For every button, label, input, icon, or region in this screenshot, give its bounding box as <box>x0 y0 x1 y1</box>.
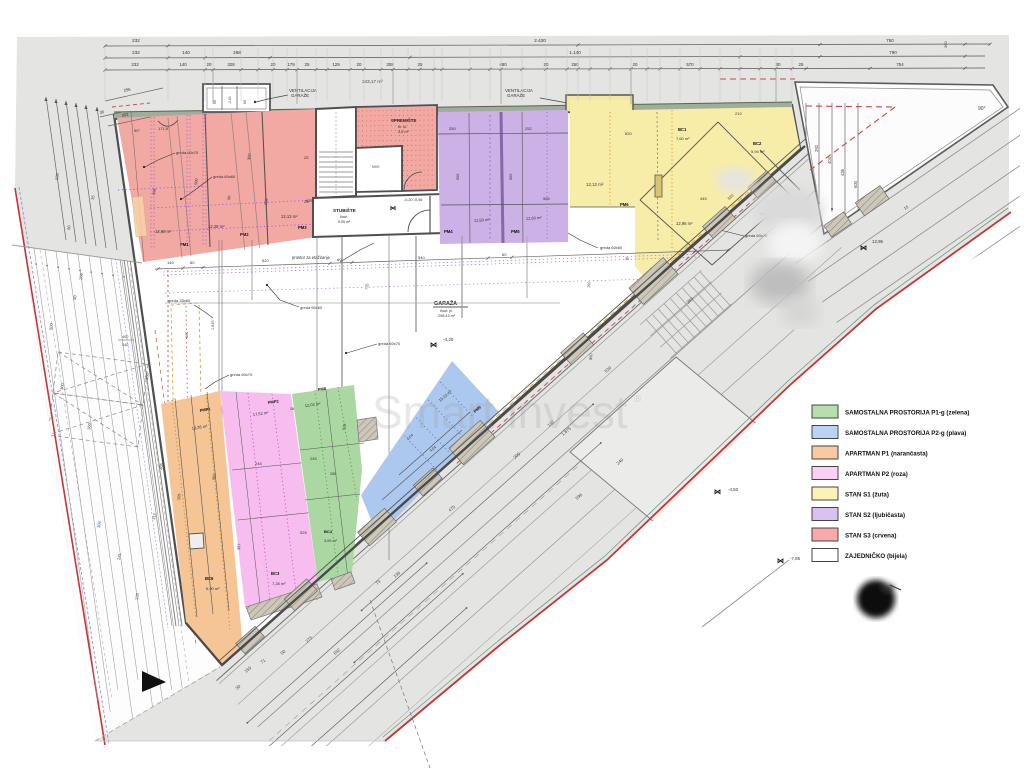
svg-text:SAMOSTALNA PROSTORIJA P2-g (p: SAMOSTALNA PROSTORIJA P2-g (plava) <box>845 430 966 437</box>
svg-text:60: 60 <box>213 100 217 104</box>
svg-text:30: 30 <box>625 257 629 261</box>
svg-text:25: 25 <box>305 62 310 67</box>
svg-text:1.645: 1.645 <box>211 320 215 330</box>
svg-text:STUBIŠTE: STUBIŠTE <box>333 206 356 213</box>
svg-text:greda 35x60: greda 35x60 <box>168 298 191 303</box>
svg-text:12,28 m²: 12,28 m² <box>208 224 225 229</box>
svg-text:12,12 m²: 12,12 m² <box>586 182 604 187</box>
svg-text:404: 404 <box>827 156 832 164</box>
svg-text:950: 950 <box>589 354 593 361</box>
svg-text:BC2: BC2 <box>753 141 762 146</box>
svg-text:PM4: PM4 <box>444 229 453 234</box>
svg-text:565: 565 <box>543 196 550 201</box>
svg-text:20: 20 <box>544 62 549 67</box>
svg-text:greda 60x60: greda 60x60 <box>213 174 236 179</box>
svg-text:12,96 m²: 12,96 m² <box>676 221 693 226</box>
svg-text:754: 754 <box>896 62 904 67</box>
svg-text:ZAJEDNIČKO (bijela): ZAJEDNIČKO (bijela) <box>845 553 907 560</box>
svg-text:greda 60x70: greda 60x70 <box>230 372 253 377</box>
svg-text:750: 750 <box>886 38 894 43</box>
svg-text:445: 445 <box>700 196 707 201</box>
svg-text:5,94 m²: 5,94 m² <box>751 149 765 154</box>
svg-text:250: 250 <box>449 126 456 131</box>
svg-text:20: 20 <box>207 62 212 67</box>
svg-text:620: 620 <box>625 131 632 136</box>
svg-text:tlocrt. pl.: tlocrt. pl. <box>440 309 453 313</box>
svg-text:⋈: ⋈ <box>714 489 721 496</box>
svg-text:398: 398 <box>152 188 157 195</box>
svg-text:232: 232 <box>132 50 140 55</box>
svg-text:90°: 90° <box>134 128 140 133</box>
svg-text:550: 550 <box>264 198 269 205</box>
svg-text:140: 140 <box>182 50 190 55</box>
svg-text:prostor za etažiranje: prostor za etažiranje <box>292 255 331 260</box>
svg-text:129: 129 <box>332 62 340 67</box>
svg-text:600: 600 <box>853 180 858 188</box>
svg-text:600: 600 <box>185 332 189 338</box>
svg-text:179: 179 <box>287 62 295 67</box>
svg-text:480: 480 <box>499 62 507 67</box>
svg-text:500: 500 <box>456 174 460 180</box>
svg-text:298,43 m²: 298,43 m² <box>438 314 456 318</box>
svg-text:60: 60 <box>502 252 507 257</box>
svg-text:328: 328 <box>227 62 235 67</box>
svg-text:245: 245 <box>255 461 262 466</box>
svg-text:9,05 m²: 9,05 m² <box>338 220 351 224</box>
svg-text:-0,20 -0,46: -0,20 -0,46 <box>404 198 422 202</box>
svg-text:PM3: PM3 <box>298 225 307 230</box>
svg-text:12,13 m²: 12,13 m² <box>281 214 298 219</box>
svg-text:252: 252 <box>525 126 532 131</box>
svg-text:STAN S2 (ljubičasta): STAN S2 (ljubičasta) <box>845 512 905 519</box>
svg-text:60: 60 <box>337 257 342 262</box>
svg-text:20: 20 <box>633 62 638 67</box>
svg-text:PM2: PM2 <box>240 232 249 237</box>
svg-text:90°: 90° <box>978 106 986 112</box>
svg-text:150: 150 <box>587 282 591 289</box>
svg-text:-4,50: -4,50 <box>728 487 739 492</box>
svg-text:PM5: PM5 <box>511 229 520 234</box>
svg-text:2.430: 2.430 <box>534 38 546 43</box>
svg-text:STAN S3 (crvena): STAN S3 (crvena) <box>845 533 896 540</box>
svg-text:250: 250 <box>330 472 336 476</box>
svg-text:60: 60 <box>227 195 231 200</box>
svg-text:540: 540 <box>418 255 425 260</box>
svg-text:SAMOSTALNA PROSTORIJA P1-g (z: SAMOSTALNA PROSTORIJA P1-g (zelena) <box>845 410 969 417</box>
svg-text:425: 425 <box>306 198 313 203</box>
svg-text:greda 60x60: greda 60x60 <box>600 245 623 250</box>
svg-text:®: ® <box>634 394 642 405</box>
svg-text:1.090: 1.090 <box>38 509 44 520</box>
svg-text:tlocrt: tlocrt <box>340 215 347 219</box>
svg-text:BC4: BC4 <box>324 529 333 534</box>
svg-text:1.140: 1.140 <box>569 50 581 55</box>
svg-text:MKE: MKE <box>372 165 380 169</box>
svg-text:715: 715 <box>365 284 369 291</box>
svg-text:6,90 m²: 6,90 m² <box>206 586 220 591</box>
svg-text:25: 25 <box>799 62 804 67</box>
svg-text:500: 500 <box>194 178 199 185</box>
svg-text:20: 20 <box>357 62 362 67</box>
svg-text:⋈: ⋈ <box>777 558 784 565</box>
svg-text:80: 80 <box>190 260 195 265</box>
svg-text:245: 245 <box>310 456 317 461</box>
svg-text:⋈: ⋈ <box>860 245 867 252</box>
svg-text:30: 30 <box>776 62 781 67</box>
svg-text:-4,20: -4,20 <box>443 337 454 342</box>
svg-text:BC6: BC6 <box>205 576 214 581</box>
svg-text:343,17 m²: 343,17 m² <box>362 79 383 84</box>
svg-text:-7,85: -7,85 <box>790 556 801 561</box>
svg-text:205: 205 <box>177 493 182 500</box>
svg-text:⋈: ⋈ <box>390 205 396 212</box>
svg-text:268: 268 <box>233 50 241 55</box>
svg-text:232: 232 <box>132 38 140 43</box>
svg-text:GARAŽE: GARAŽE <box>507 93 525 98</box>
svg-text:-2,60: -2,60 <box>228 96 232 104</box>
svg-text:STAN S1 (žuta): STAN S1 (žuta) <box>845 492 889 499</box>
svg-text:3,5 m²: 3,5 m² <box>398 130 409 134</box>
svg-text:greda 60x70: greda 60x70 <box>378 341 401 346</box>
svg-text:140: 140 <box>179 62 187 67</box>
svg-text:APARTMAN P2 (roza): APARTMAN P2 (roza) <box>845 471 908 478</box>
svg-text:25: 25 <box>304 155 309 160</box>
svg-text:436: 436 <box>840 168 845 176</box>
svg-text:7,60 m²: 7,60 m² <box>676 136 690 141</box>
svg-text:Smart invest: Smart invest <box>372 386 628 438</box>
svg-text:25: 25 <box>418 62 423 67</box>
svg-text:570: 570 <box>686 62 694 67</box>
svg-text:BC3: BC3 <box>271 571 280 576</box>
svg-text:APARTMAN P1 (narančasta): APARTMAN P1 (narančasta) <box>845 451 928 458</box>
svg-text:20: 20 <box>271 62 276 67</box>
svg-text:400: 400 <box>122 335 128 339</box>
svg-text:140: 140 <box>167 260 174 265</box>
svg-text:520: 520 <box>262 258 269 263</box>
svg-text:12,95: 12,95 <box>872 239 884 244</box>
svg-text:BC1: BC1 <box>678 127 687 132</box>
svg-text:60: 60 <box>243 100 247 104</box>
svg-text:⋈: ⋈ <box>430 342 437 349</box>
svg-text:232: 232 <box>131 62 139 67</box>
svg-text:500: 500 <box>509 174 513 180</box>
svg-text:3,09 m²: 3,09 m² <box>324 539 338 543</box>
svg-text:171,6°: 171,6° <box>158 126 170 131</box>
svg-text:SPREMIŠTE: SPREMIŠTE <box>391 118 416 123</box>
svg-text:210: 210 <box>735 111 742 116</box>
svg-text:greda 60x60: greda 60x60 <box>300 305 323 310</box>
svg-text:12,68 m²: 12,68 m² <box>155 229 172 234</box>
svg-text:br. st.: br. st. <box>398 125 407 129</box>
svg-text:greda 60x70: greda 60x70 <box>745 233 768 238</box>
svg-text:greda 60x70: greda 60x70 <box>176 150 199 155</box>
svg-text:525: 525 <box>300 530 307 535</box>
svg-text:790: 790 <box>889 50 897 55</box>
svg-text:357: 357 <box>237 543 242 550</box>
svg-text:GARAŽE: GARAŽE <box>291 93 309 98</box>
svg-text:360: 360 <box>943 41 948 48</box>
svg-text:7,28 m²: 7,28 m² <box>272 581 286 586</box>
svg-text:240: 240 <box>122 343 128 347</box>
svg-text:292: 292 <box>814 144 819 152</box>
svg-text:550: 550 <box>212 473 217 480</box>
svg-text:PM6: PM6 <box>620 202 629 207</box>
svg-text:PM1: PM1 <box>180 242 189 247</box>
